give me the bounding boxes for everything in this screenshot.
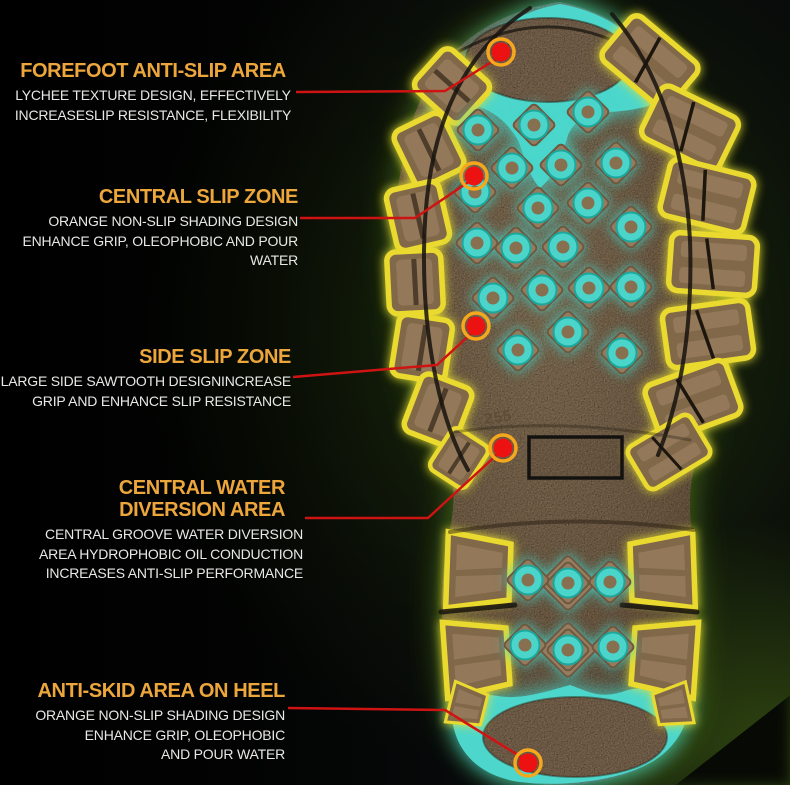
annotation-water-diversion: CENTRAL WATER DIVERSION AREA CENTRAL GRO… bbox=[0, 477, 303, 584]
annotation-line: INCREASES ANTI-SLIP PERFORMANCE bbox=[0, 564, 303, 584]
annotation-side-slip: SIDE SLIP ZONE LARGE SIDE SAWTOOTH DESIG… bbox=[0, 346, 291, 411]
annotation-line: LYCHEE TEXTURE DESIGN, EFFECTIVELY bbox=[12, 86, 294, 106]
annotation-line: GRIP AND ENHANCE SLIP RESISTANCE bbox=[0, 392, 291, 412]
annotation-title: FOREFOOT ANTI-SLIP AREA bbox=[12, 60, 294, 82]
annotation-title: CENTRAL SLIP ZONE bbox=[0, 186, 298, 208]
annotation-heel: ANTI-SKID AREA ON HEEL ORANGE NON-SLIP S… bbox=[0, 680, 285, 765]
callout-dot-forefoot bbox=[488, 39, 514, 65]
annotation-title: SIDE SLIP ZONE bbox=[0, 346, 291, 368]
annotation-line: ORANGE NON-SLIP SHADING DESIGN bbox=[0, 706, 285, 726]
annotation-line: ENHANCE GRIP, OLEOPHOBIC bbox=[0, 726, 285, 746]
annotation-forefoot: FOREFOOT ANTI-SLIP AREA LYCHEE TEXTURE D… bbox=[12, 60, 294, 125]
annotation-line: AND POUR WATER bbox=[0, 745, 285, 765]
annotation-central-slip: CENTRAL SLIP ZONE ORANGE NON-SLIP SHADIN… bbox=[0, 186, 298, 271]
annotation-line: CENTRAL GROOVE WATER DIVERSION bbox=[0, 525, 303, 545]
annotation-title: ANTI-SKID AREA ON HEEL bbox=[0, 680, 285, 702]
annotation-line: AREA HYDROPHOBIC OIL CONDUCTION bbox=[0, 545, 303, 565]
callout-dot-heel bbox=[515, 750, 541, 776]
annotation-line: ENHANCE GRIP, OLEOPHOBIC AND POUR WATER bbox=[0, 232, 298, 271]
callout-dot-water-diversion bbox=[490, 435, 516, 461]
annotation-line: INCREASESLIP RESISTANCE, FLEXIBILITY bbox=[12, 106, 294, 126]
callout-dot-side-slip bbox=[463, 313, 489, 339]
callout-dot-central-slip bbox=[461, 163, 487, 189]
logo-box bbox=[529, 437, 622, 478]
annotation-line: ORANGE NON-SLIP SHADING DESIGN bbox=[0, 212, 298, 232]
annotation-title: DIVERSION AREA bbox=[0, 499, 303, 521]
annotation-line: LARGE SIDE SAWTOOTH DESIGNINCREASE bbox=[0, 372, 291, 392]
heel-texture-patch bbox=[483, 697, 667, 777]
annotation-title: CENTRAL WATER bbox=[0, 477, 303, 499]
infographic-canvas: 255 FOREFOOT ANTI-SLIP AREA LYCHEE TEXTU… bbox=[0, 0, 790, 785]
